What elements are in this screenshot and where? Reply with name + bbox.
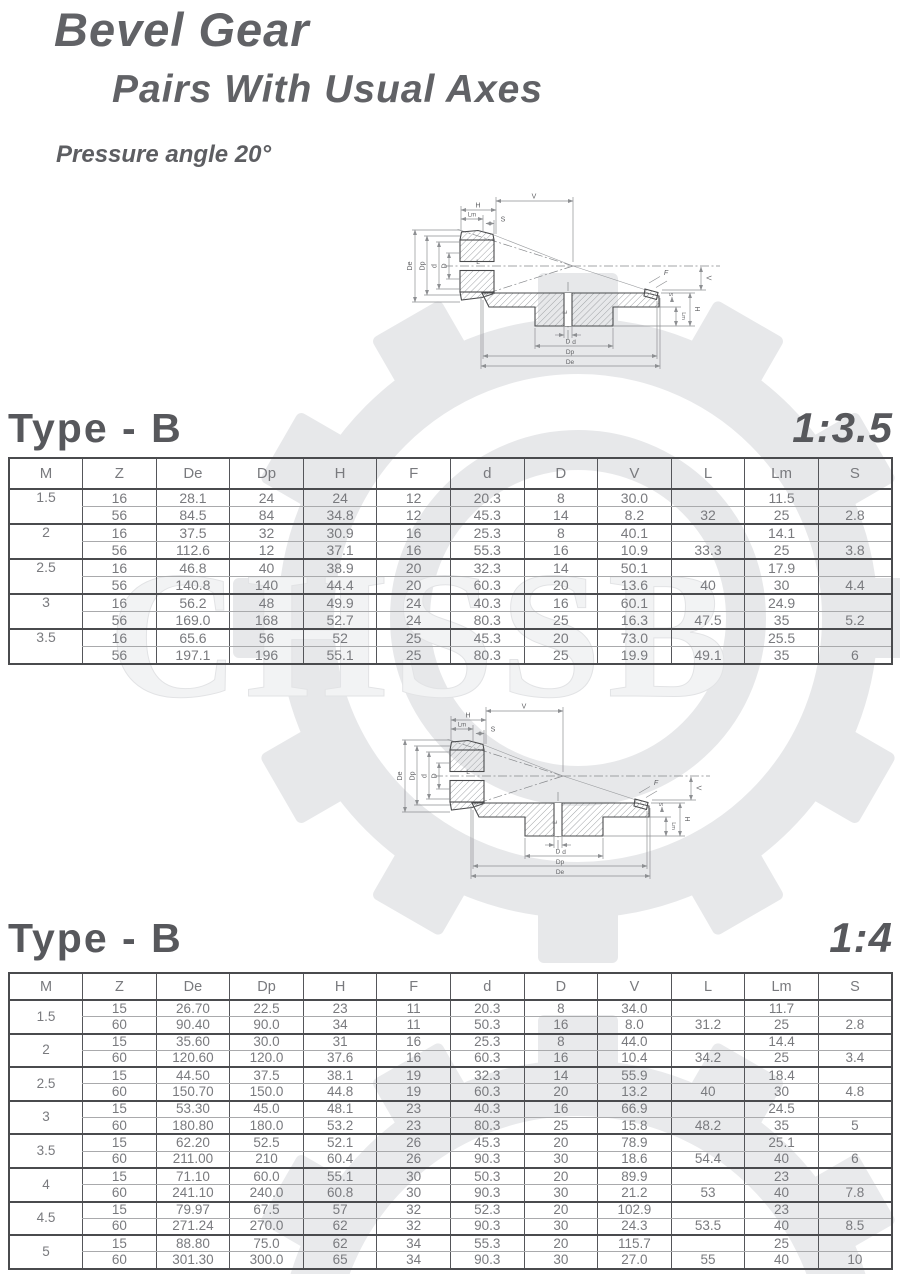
value-cell <box>818 524 892 542</box>
value-cell: 37.6 <box>303 1050 377 1067</box>
module-cell: 1.5 <box>9 1000 83 1034</box>
value-cell: 60.8 <box>303 1185 377 1202</box>
value-cell: 62.20 <box>156 1134 230 1151</box>
value-cell: 75.0 <box>230 1235 304 1252</box>
value-cell: 37.5 <box>230 1067 304 1084</box>
value-cell: 21.2 <box>598 1185 672 1202</box>
value-cell: 15 <box>83 1202 157 1219</box>
value-cell: 32.3 <box>450 559 524 577</box>
module-cell: 2.5 <box>9 559 83 594</box>
value-cell: 90.3 <box>450 1218 524 1235</box>
value-cell: 56.2 <box>156 594 230 612</box>
value-cell: 15 <box>83 1034 157 1051</box>
value-cell: 5 <box>818 1118 892 1135</box>
value-cell: 24 <box>377 594 451 612</box>
dim-label-s-top: S <box>491 727 496 734</box>
value-cell: 31.2 <box>671 1017 745 1034</box>
value-cell: 10 <box>818 1252 892 1269</box>
value-cell: 20.3 <box>450 1000 524 1017</box>
value-cell: 301.30 <box>156 1252 230 1269</box>
value-cell: 24 <box>303 489 377 507</box>
value-cell: 210 <box>230 1151 304 1168</box>
value-cell: 90.40 <box>156 1017 230 1034</box>
value-cell: 55.1 <box>303 1168 377 1185</box>
dim-label-de-bottom: De <box>566 359 575 366</box>
value-cell: 46.8 <box>156 559 230 577</box>
value-cell: 20 <box>524 1235 598 1252</box>
dim-label-dcap-bottom: D <box>556 849 561 856</box>
value-cell: 25 <box>524 1118 598 1135</box>
dim-label-l-gear: L <box>562 310 569 314</box>
value-cell <box>671 489 745 507</box>
dim-label-lm-right: Lm <box>670 822 676 830</box>
column-header-d: d <box>450 973 524 1000</box>
value-cell: 30 <box>377 1168 451 1185</box>
value-cell: 49.9 <box>303 594 377 612</box>
value-cell <box>671 1202 745 1219</box>
value-cell: 44.8 <box>303 1084 377 1101</box>
value-cell: 16 <box>524 1017 598 1034</box>
value-cell: 49.1 <box>671 647 745 665</box>
value-cell: 89.9 <box>598 1168 672 1185</box>
value-cell <box>671 594 745 612</box>
dim-label-l-pinion: L <box>476 259 480 266</box>
value-cell: 23 <box>377 1118 451 1135</box>
value-cell <box>671 629 745 647</box>
value-cell: 14.1 <box>745 524 819 542</box>
value-cell: 37.5 <box>156 524 230 542</box>
module-cell: 3 <box>9 1101 83 1135</box>
value-cell: 35.60 <box>156 1034 230 1051</box>
value-cell <box>671 1034 745 1051</box>
value-cell: 57 <box>303 1202 377 1219</box>
dimension-lines <box>402 707 696 879</box>
value-cell: 20 <box>524 1202 598 1219</box>
value-cell: 60 <box>83 1151 157 1168</box>
value-cell: 8.5 <box>818 1218 892 1235</box>
value-cell: 241.10 <box>156 1185 230 1202</box>
value-cell: 6 <box>818 1151 892 1168</box>
value-cell: 16 <box>524 1101 598 1118</box>
type-label-1: Type - B <box>8 405 183 452</box>
value-cell: 12 <box>377 507 451 525</box>
value-cell: 18.6 <box>598 1151 672 1168</box>
value-cell: 45.3 <box>450 507 524 525</box>
value-cell: 53 <box>671 1185 745 1202</box>
value-cell: 55.9 <box>598 1067 672 1084</box>
value-cell: 168 <box>230 612 304 630</box>
value-cell: 3.4 <box>818 1050 892 1067</box>
value-cell: 38.1 <box>303 1067 377 1084</box>
value-cell <box>671 524 745 542</box>
value-cell: 10.4 <box>598 1050 672 1067</box>
value-cell: 25 <box>745 1050 819 1067</box>
value-cell: 11 <box>377 1000 451 1017</box>
module-cell: 3.5 <box>9 629 83 664</box>
value-cell: 19.9 <box>598 647 672 665</box>
column-header-Dp: Dp <box>230 458 304 489</box>
table-row: 60150.70150.044.81960.32013.240304.8 <box>9 1084 892 1101</box>
value-cell: 24.5 <box>745 1101 819 1118</box>
value-cell: 48 <box>230 594 304 612</box>
column-header-V: V <box>598 973 672 1000</box>
value-cell: 80.3 <box>450 1118 524 1135</box>
dim-label-f-right: F <box>664 270 669 277</box>
value-cell: 35 <box>745 1118 819 1135</box>
column-header-H: H <box>303 458 377 489</box>
value-cell: 53.5 <box>671 1218 745 1235</box>
value-cell: 34.2 <box>671 1050 745 1067</box>
dim-label-v-right: V <box>695 786 702 791</box>
value-cell: 56 <box>230 629 304 647</box>
value-cell: 56 <box>83 507 157 525</box>
value-cell: 15 <box>83 1000 157 1017</box>
value-cell: 16 <box>524 594 598 612</box>
value-cell: 53.30 <box>156 1101 230 1118</box>
value-cell: 30 <box>524 1218 598 1235</box>
value-cell: 24 <box>377 612 451 630</box>
pressure-angle-note: Pressure angle 20° <box>56 141 271 169</box>
column-header-V: V <box>598 458 672 489</box>
dim-label-f-right: F <box>654 780 659 787</box>
value-cell: 8 <box>524 1034 598 1051</box>
value-cell: 34.8 <box>303 507 377 525</box>
value-cell: 34 <box>303 1017 377 1034</box>
ratio-label-1: 1:3.5 <box>792 404 893 452</box>
value-cell: 4.4 <box>818 577 892 595</box>
value-cell: 25 <box>377 647 451 665</box>
value-cell: 196 <box>230 647 304 665</box>
value-cell: 34 <box>377 1252 451 1269</box>
value-cell: 60 <box>83 1252 157 1269</box>
value-cell: 56 <box>83 612 157 630</box>
column-header-F: F <box>377 458 451 489</box>
value-cell: 300.0 <box>230 1252 304 1269</box>
value-cell: 4.8 <box>818 1084 892 1101</box>
value-cell: 24 <box>230 489 304 507</box>
value-cell: 60.3 <box>450 1050 524 1067</box>
table-row: 60120.60120.037.61660.31610.434.2253.4 <box>9 1050 892 1067</box>
value-cell: 240.0 <box>230 1185 304 1202</box>
column-header-S: S <box>818 458 892 489</box>
value-cell: 32 <box>377 1202 451 1219</box>
value-cell: 35 <box>745 647 819 665</box>
value-cell: 32 <box>377 1218 451 1235</box>
value-cell: 23 <box>745 1202 819 1219</box>
value-cell: 15.8 <box>598 1118 672 1135</box>
value-cell: 55.1 <box>303 647 377 665</box>
dim-label-de-left: De <box>407 261 414 270</box>
column-header-L: L <box>671 973 745 1000</box>
value-cell <box>818 1168 892 1185</box>
dim-label-dp-bottom: Dp <box>566 349 575 356</box>
value-cell: 140 <box>230 577 304 595</box>
value-cell: 40 <box>230 559 304 577</box>
value-cell: 16 <box>83 489 157 507</box>
value-cell: 16 <box>524 1050 598 1067</box>
value-cell: 25 <box>377 629 451 647</box>
value-cell: 15 <box>83 1235 157 1252</box>
value-cell: 53.2 <box>303 1118 377 1135</box>
value-cell: 33.3 <box>671 542 745 560</box>
value-cell: 80.3 <box>450 612 524 630</box>
dim-label-h-right: H <box>683 816 690 821</box>
module-cell: 2.5 <box>9 1067 83 1101</box>
value-cell: 11 <box>377 1017 451 1034</box>
value-cell: 40.3 <box>450 594 524 612</box>
value-cell: 23 <box>745 1168 819 1185</box>
value-cell: 16 <box>83 594 157 612</box>
value-cell <box>818 1101 892 1118</box>
value-cell: 30.0 <box>598 489 672 507</box>
spec-table-1-3-5: MZDeDpHFdDVLLmS1.51628.124241220.3830.01… <box>8 457 893 665</box>
value-cell: 15 <box>83 1168 157 1185</box>
value-cell <box>671 1134 745 1151</box>
value-cell: 31 <box>303 1034 377 1051</box>
value-cell: 150.70 <box>156 1084 230 1101</box>
table-row: 2.51544.5037.538.11932.31455.918.4 <box>9 1067 892 1084</box>
value-cell: 40 <box>745 1185 819 1202</box>
value-cell: 20 <box>377 559 451 577</box>
value-cell: 25.5 <box>745 629 819 647</box>
value-cell: 26.70 <box>156 1000 230 1017</box>
module-cell: 2 <box>9 524 83 559</box>
value-cell: 20.3 <box>450 489 524 507</box>
value-cell: 67.5 <box>230 1202 304 1219</box>
value-cell: 40 <box>745 1218 819 1235</box>
dim-label-dp-left: Dp <box>410 771 417 780</box>
value-cell: 60 <box>83 1017 157 1034</box>
value-cell: 90.3 <box>450 1151 524 1168</box>
value-cell: 54.4 <box>671 1151 745 1168</box>
table-row: 56197.119655.12580.32519.949.1356 <box>9 647 892 665</box>
value-cell: 30.0 <box>230 1034 304 1051</box>
value-cell: 7.8 <box>818 1185 892 1202</box>
value-cell: 20 <box>524 1134 598 1151</box>
value-cell <box>818 1134 892 1151</box>
value-cell: 60.0 <box>230 1168 304 1185</box>
value-cell <box>818 1067 892 1084</box>
value-cell: 25.3 <box>450 524 524 542</box>
value-cell: 60.4 <box>303 1151 377 1168</box>
value-cell: 12 <box>230 542 304 560</box>
table-row: 51588.8075.0623455.320115.725 <box>9 1235 892 1252</box>
module-cell: 1.5 <box>9 489 83 524</box>
value-cell: 30 <box>524 1151 598 1168</box>
value-cell: 30 <box>745 1084 819 1101</box>
value-cell: 3.8 <box>818 542 892 560</box>
module-cell: 4 <box>9 1168 83 1202</box>
column-header-M: M <box>9 973 83 1000</box>
dim-label-s-right: S <box>657 803 663 807</box>
value-cell: 35 <box>745 612 819 630</box>
table-row: 60301.30300.0653490.33027.0554010 <box>9 1252 892 1269</box>
value-cell: 169.0 <box>156 612 230 630</box>
dim-label-dcap-left: D <box>432 773 439 778</box>
value-cell: 60 <box>83 1218 157 1235</box>
value-cell: 44.4 <box>303 577 377 595</box>
module-cell: 2 <box>9 1034 83 1068</box>
value-cell: 8.2 <box>598 507 672 525</box>
value-cell: 8 <box>524 524 598 542</box>
dim-label-d-left: d <box>432 264 439 268</box>
value-cell: 40 <box>671 577 745 595</box>
value-cell: 79.97 <box>156 1202 230 1219</box>
value-cell <box>818 629 892 647</box>
ratio-label-2: 1:4 <box>829 914 893 962</box>
value-cell: 24.3 <box>598 1218 672 1235</box>
value-cell: 211.00 <box>156 1151 230 1168</box>
dim-label-h-top: H <box>475 203 480 210</box>
value-cell: 84.5 <box>156 507 230 525</box>
value-cell: 45.3 <box>450 629 524 647</box>
dim-label-lm-top: Lm <box>458 723 466 729</box>
value-cell: 180.80 <box>156 1118 230 1135</box>
value-cell: 13.2 <box>598 1084 672 1101</box>
dim-label-l-gear: L <box>552 820 559 824</box>
value-cell: 271.24 <box>156 1218 230 1235</box>
dim-label-h-top: H <box>465 713 470 720</box>
value-cell: 50.1 <box>598 559 672 577</box>
value-cell: 88.80 <box>156 1235 230 1252</box>
bevel-gear-drawing: V H Lm S De Dp d D L L D Dp De d F V S H <box>388 700 722 914</box>
value-cell: 60 <box>83 1084 157 1101</box>
column-header-M: M <box>9 458 83 489</box>
value-cell: 20 <box>377 577 451 595</box>
table-row: 60241.10240.060.83090.33021.253407.8 <box>9 1185 892 1202</box>
table-row: 1.51526.7022.5231120.3834.011.7 <box>9 1000 892 1017</box>
value-cell: 48.1 <box>303 1101 377 1118</box>
value-cell: 44.50 <box>156 1067 230 1084</box>
table-row: 21535.6030.0311625.3844.014.4 <box>9 1034 892 1051</box>
table-row: 56112.61237.11655.31610.933.3253.8 <box>9 542 892 560</box>
table-row: 3.51562.2052.552.12645.32078.925.1 <box>9 1134 892 1151</box>
value-cell: 60.1 <box>598 594 672 612</box>
dim-label-d-bottom: d <box>572 339 576 346</box>
value-cell: 45.3 <box>450 1134 524 1151</box>
value-cell: 56 <box>83 647 157 665</box>
value-cell: 20 <box>524 629 598 647</box>
value-cell: 40.3 <box>450 1101 524 1118</box>
value-cell: 11.5 <box>745 489 819 507</box>
value-cell: 71.10 <box>156 1168 230 1185</box>
table-row: 41571.1060.055.13050.32089.923 <box>9 1168 892 1185</box>
value-cell: 15 <box>83 1067 157 1084</box>
module-cell: 5 <box>9 1235 83 1269</box>
value-cell: 56 <box>83 542 157 560</box>
value-cell: 60 <box>83 1050 157 1067</box>
value-cell: 44.0 <box>598 1034 672 1051</box>
value-cell: 40.1 <box>598 524 672 542</box>
value-cell: 32 <box>230 524 304 542</box>
value-cell: 8 <box>524 1000 598 1017</box>
value-cell: 62 <box>303 1218 377 1235</box>
dim-label-dcap-left: D <box>442 263 449 268</box>
dim-label-de-left: De <box>397 771 404 780</box>
value-cell: 13.6 <box>598 577 672 595</box>
value-cell: 55.3 <box>450 1235 524 1252</box>
dim-label-v-top: V <box>532 194 537 201</box>
table-row: 56169.016852.72480.32516.347.5355.2 <box>9 612 892 630</box>
dimension-lines <box>412 197 706 369</box>
value-cell: 56 <box>83 577 157 595</box>
bevel-gear-diagram-2: V H Lm S De Dp d D L L D Dp De d F V S H <box>388 700 722 914</box>
value-cell: 10.9 <box>598 542 672 560</box>
value-cell: 84 <box>230 507 304 525</box>
value-cell: 14 <box>524 559 598 577</box>
value-cell: 32.3 <box>450 1067 524 1084</box>
value-cell: 22.5 <box>230 1000 304 1017</box>
value-cell: 6 <box>818 647 892 665</box>
value-cell: 60 <box>83 1118 157 1135</box>
value-cell: 40 <box>671 1084 745 1101</box>
column-header-De: De <box>156 458 230 489</box>
column-header-Dp: Dp <box>230 973 304 1000</box>
value-cell: 27.0 <box>598 1252 672 1269</box>
value-cell: 47.5 <box>671 612 745 630</box>
value-cell: 40 <box>745 1151 819 1168</box>
value-cell: 30 <box>745 577 819 595</box>
value-cell: 60.3 <box>450 577 524 595</box>
dim-label-dp-left: Dp <box>420 261 427 270</box>
pitch-lines <box>484 745 636 800</box>
value-cell: 14.4 <box>745 1034 819 1051</box>
value-cell <box>818 489 892 507</box>
value-cell: 52.5 <box>230 1134 304 1151</box>
value-cell: 52.1 <box>303 1134 377 1151</box>
table-row: 31656.24849.92440.31660.124.9 <box>9 594 892 612</box>
value-cell: 14 <box>524 1067 598 1084</box>
bevel-gear-diagram-1: V H Lm S De Dp d D L L D Dp De d F V S H <box>398 190 732 404</box>
value-cell: 34 <box>377 1235 451 1252</box>
value-cell: 14 <box>524 507 598 525</box>
gear-section <box>472 799 649 836</box>
value-cell: 20 <box>524 1084 598 1101</box>
value-cell: 16.3 <box>598 612 672 630</box>
value-cell: 115.7 <box>598 1235 672 1252</box>
value-cell: 52.3 <box>450 1202 524 1219</box>
dim-label-l-pinion: L <box>466 769 470 776</box>
value-cell <box>818 1202 892 1219</box>
value-cell: 65 <box>303 1252 377 1269</box>
value-cell <box>671 1101 745 1118</box>
type-label-2: Type - B <box>8 915 183 962</box>
column-header-D: D <box>524 458 598 489</box>
value-cell: 60.3 <box>450 1084 524 1101</box>
section-heading-2: Type - B 1:4 <box>8 914 893 962</box>
table-row: 56140.814044.42060.32013.640304.4 <box>9 577 892 595</box>
value-cell: 23 <box>303 1000 377 1017</box>
dim-label-lm-top: Lm <box>468 213 476 219</box>
module-cell: 3.5 <box>9 1134 83 1168</box>
value-cell: 65.6 <box>156 629 230 647</box>
value-cell: 120.60 <box>156 1050 230 1067</box>
value-cell: 270.0 <box>230 1218 304 1235</box>
value-cell: 16 <box>83 524 157 542</box>
dim-label-dp-bottom: Dp <box>556 859 565 866</box>
value-cell: 90.3 <box>450 1185 524 1202</box>
catalog-page: CHSSB Bevel Gear Pairs With Usual Axes P… <box>0 0 900 1274</box>
dimension-labels: V H Lm S De Dp d D L L D Dp De d F V S H <box>407 194 712 367</box>
value-cell: 50.3 <box>450 1168 524 1185</box>
value-cell <box>671 1168 745 1185</box>
value-cell: 16 <box>377 1050 451 1067</box>
table-row: 2.51646.84038.92032.31450.117.9 <box>9 559 892 577</box>
column-header-d: d <box>450 458 524 489</box>
table-row: 3.51665.656522545.32073.025.5 <box>9 629 892 647</box>
value-cell: 28.1 <box>156 489 230 507</box>
value-cell: 55 <box>671 1252 745 1269</box>
